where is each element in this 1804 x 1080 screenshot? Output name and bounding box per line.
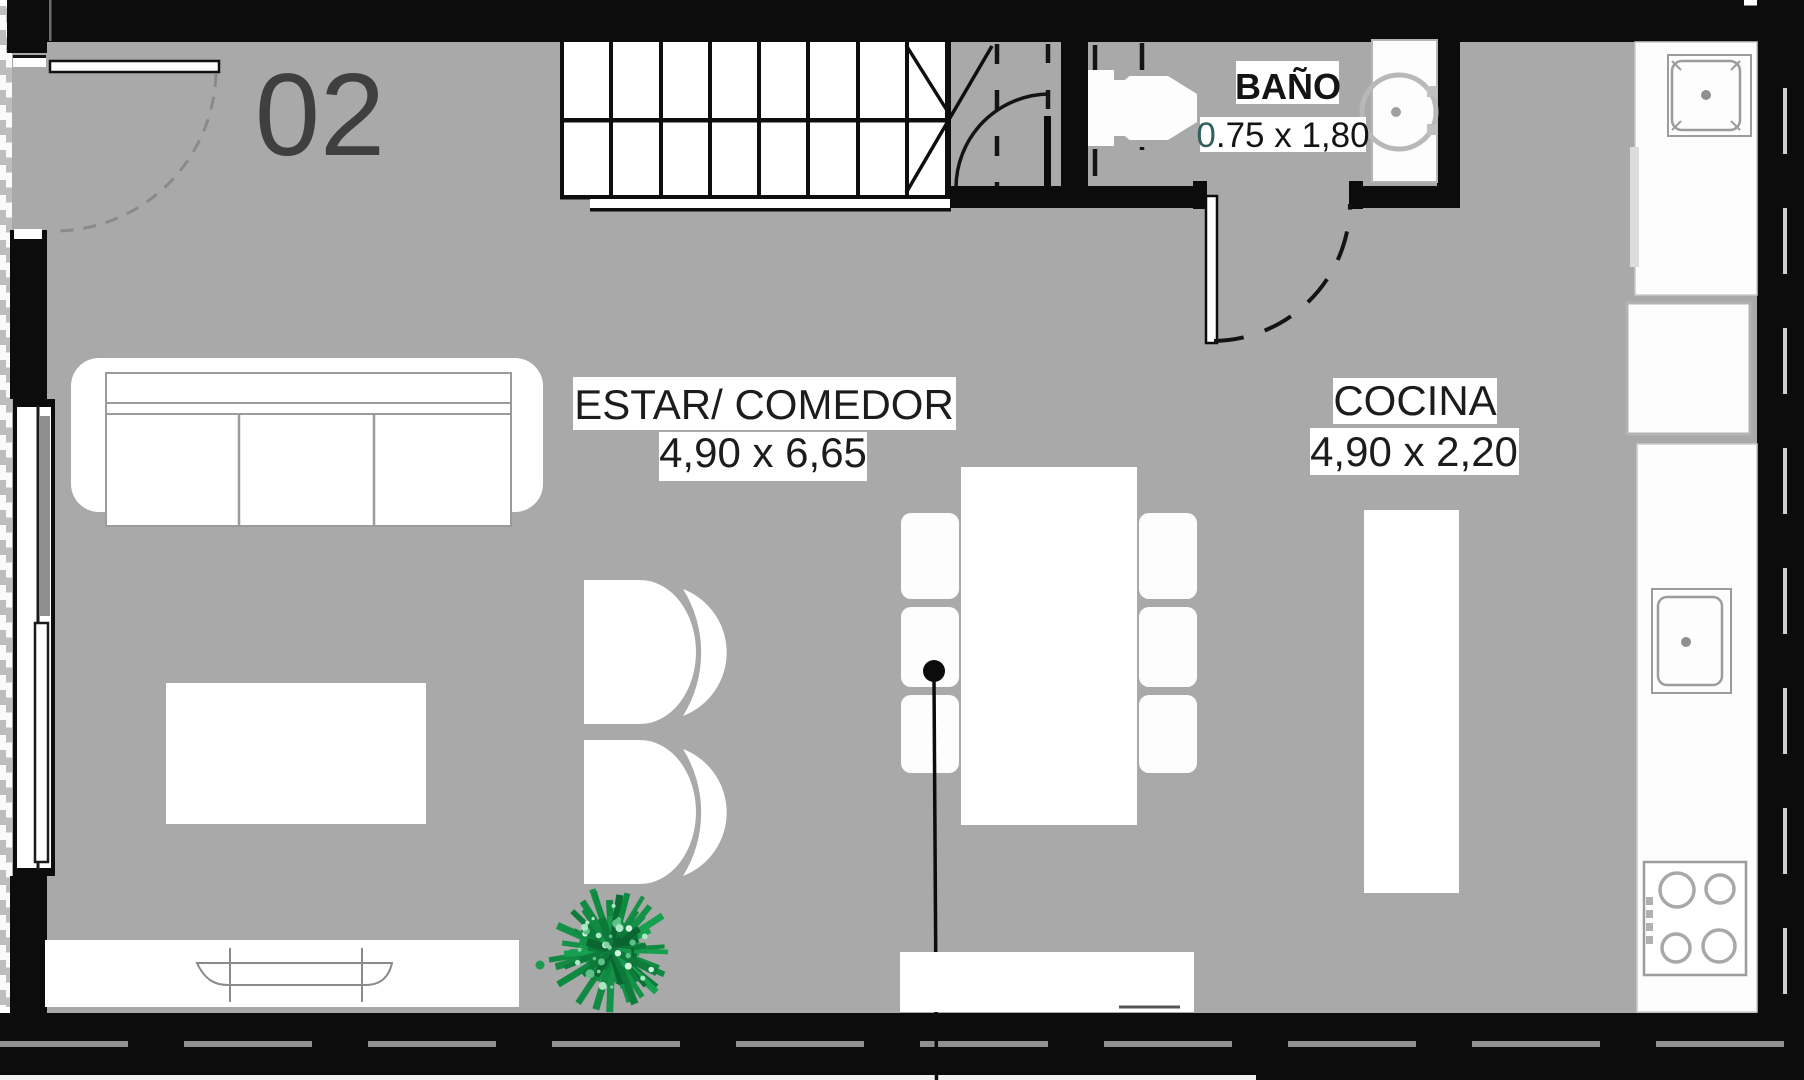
svg-text:02: 02	[255, 49, 385, 180]
svg-text:BAÑO: BAÑO	[1235, 65, 1341, 107]
svg-text:4,90 x 2,20: 4,90 x 2,20	[1310, 428, 1518, 475]
svg-text:ESTAR/ COMEDOR: ESTAR/ COMEDOR	[574, 381, 954, 428]
svg-text:4,90 x 6,65: 4,90 x 6,65	[659, 429, 867, 476]
svg-text:0.75 x 1,80: 0.75 x 1,80	[1196, 116, 1369, 155]
svg-text:COCINA: COCINA	[1333, 377, 1496, 424]
